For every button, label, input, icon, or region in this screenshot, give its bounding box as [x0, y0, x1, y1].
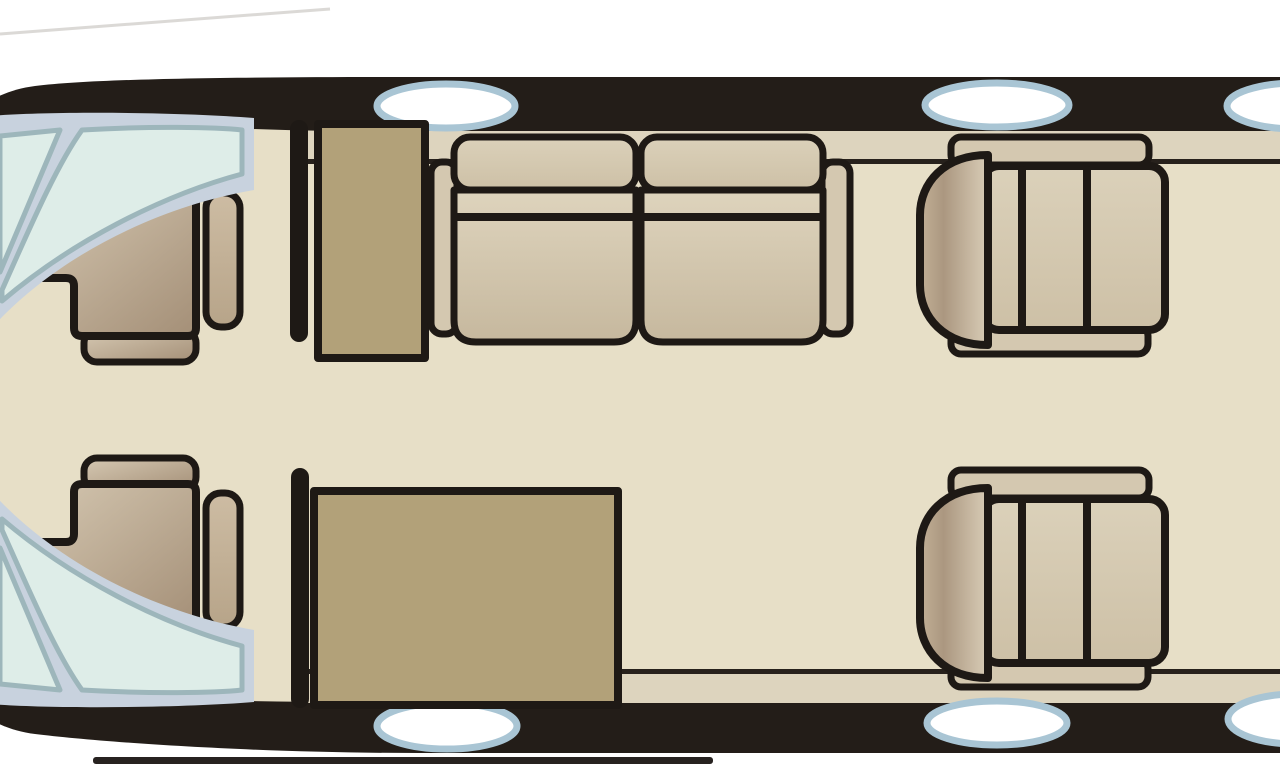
cabinet-aft — [314, 491, 618, 705]
divan-backrest-2 — [641, 137, 823, 190]
club-seat-body — [983, 166, 1165, 330]
decor-line-top — [0, 9, 330, 34]
cabin-window-bottom-2 — [927, 701, 1067, 745]
cabin-window-top-2 — [925, 83, 1069, 127]
club-seat-back — [920, 155, 988, 345]
club-seat-back — [920, 488, 988, 678]
floor-shadow-line — [93, 757, 713, 764]
pilot-seat-headrest — [206, 493, 240, 627]
jet-cabin-floorplan — [0, 0, 1280, 768]
divan-seat-1 — [454, 190, 636, 342]
club-seat-body — [983, 499, 1165, 663]
club-seat-aft — [920, 470, 1165, 687]
divan-backrest-1 — [454, 137, 636, 190]
cockpit-partition-lower — [291, 468, 309, 708]
cabinet-forward — [318, 124, 425, 358]
pilot-seat-headrest — [206, 193, 240, 327]
cabin-window-bottom-1 — [377, 703, 517, 749]
club-seat-forward — [920, 137, 1165, 354]
divan-back-line — [454, 213, 823, 221]
cockpit-partition-upper — [290, 120, 308, 342]
divan — [431, 137, 850, 342]
divan-seat-2 — [641, 190, 823, 342]
